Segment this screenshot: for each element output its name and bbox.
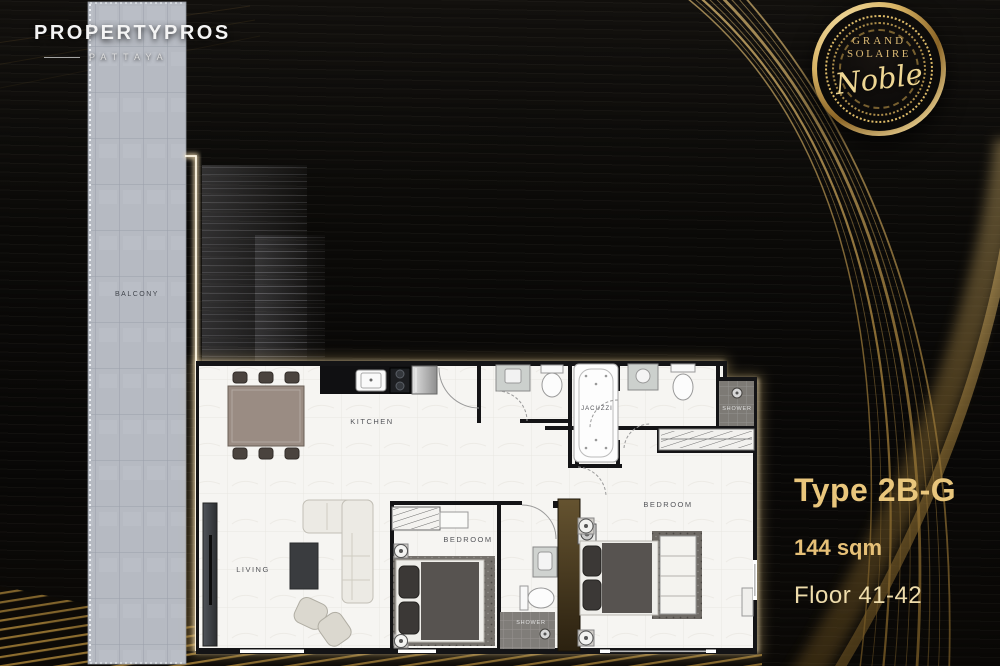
grand-solaire-noble-badge: GRAND SOLAIRE Noble [812, 2, 946, 136]
badge-text-group: GRAND SOLAIRE Noble [812, 2, 946, 136]
master-shower-label: SHOWER [722, 406, 752, 412]
poster: PROPERTYPROS PATTAYA GRAND SOLAIRE Noble… [0, 0, 1000, 666]
living-label: LIVING [236, 565, 270, 574]
property-pros-wordmark: PROPERTYPROS [34, 22, 231, 45]
middle-bedroom-label: BEDROOM [443, 535, 492, 544]
unit-type-title: Type 2B-G [794, 472, 956, 509]
master-shower-room [719, 381, 754, 426]
unit-info-panel: Type 2B-G 144 sqm Floor 41-42 [794, 472, 956, 610]
brand-block: PROPERTYPROS PATTAYA [34, 22, 231, 62]
unit-floor-text: Floor 41-42 [794, 582, 956, 610]
badge-noble-script: Noble [833, 57, 924, 101]
badge-grand-text: GRAND [852, 35, 906, 47]
jacuzzi-tub [574, 364, 618, 462]
balcony [88, 2, 196, 664]
subtitle-divider-line [44, 57, 80, 58]
balcony-label: BALCONY [115, 291, 159, 298]
master-bedroom-label: BEDROOM [643, 500, 692, 509]
jacuzzi-label: JACUZZI [581, 406, 613, 412]
unit-area-text: 144 sqm [794, 535, 956, 561]
shaft-column [558, 499, 580, 651]
second-shower-label: SHOWER [516, 620, 546, 626]
building-silhouette [202, 165, 325, 361]
master-wardrobe-rack [659, 429, 754, 450]
kitchen-counter [320, 366, 437, 394]
kitchen-label: KITCHEN [350, 417, 393, 426]
pattaya-subtitle: PATTAYA [89, 52, 169, 62]
brand-subtitle-row: PATTAYA [44, 52, 231, 62]
